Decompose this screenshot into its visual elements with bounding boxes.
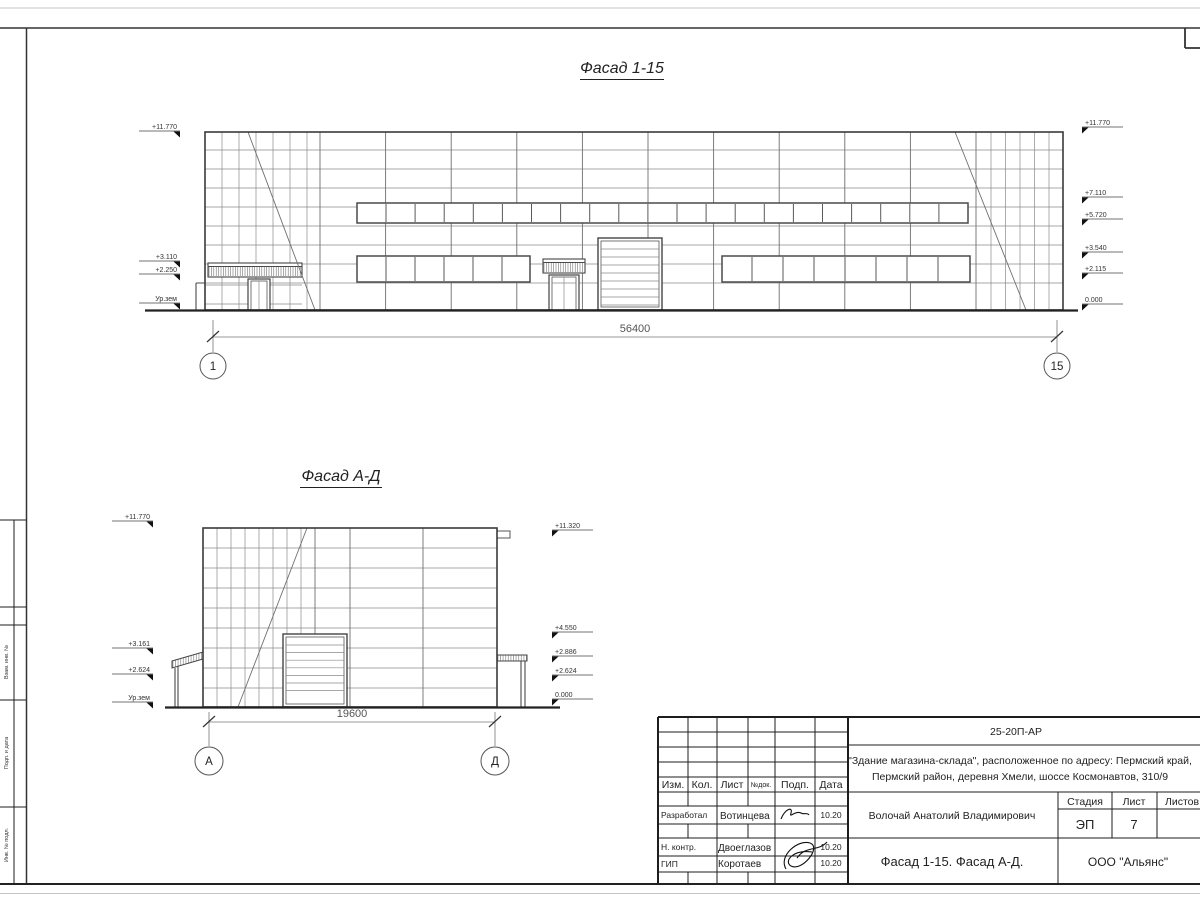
elevation-mark: +2.624: [552, 668, 593, 682]
svg-text:0.000: 0.000: [1085, 297, 1103, 304]
svg-text:+5.720: +5.720: [1085, 212, 1107, 219]
frame-side-column: Взам. инв. № Подп. и дата Инв. № подл.: [0, 520, 26, 884]
f2-axis-a-label: А: [205, 756, 213, 768]
tb-col-list: Лист: [721, 779, 744, 791]
elevation-mark: +3.540: [1082, 245, 1123, 259]
tb-role: ГИП: [661, 859, 678, 869]
elevation-mark: +11.770: [139, 124, 180, 138]
elevation-mark: +11.770: [1082, 120, 1123, 134]
f2-elevation-marks-right: +11.320 +4.550 +2.886 +2.624 0.000: [552, 523, 593, 706]
elevation-mark: +4.550: [552, 625, 593, 639]
tb-col-izm: Изм.: [662, 779, 685, 791]
f2-roof-vent: [497, 531, 510, 538]
elevation-mark: +2.886: [552, 649, 593, 663]
tb-col-podp: Подп.: [781, 779, 809, 791]
elevation-mark: +3.161: [112, 641, 153, 655]
svg-text:+2.886: +2.886: [555, 649, 577, 656]
f2-right-canopy: [497, 655, 527, 707]
tb-role: Разработал: [661, 810, 707, 820]
svg-text:+2.115: +2.115: [1085, 266, 1106, 273]
tb-date: 10.20: [820, 858, 842, 868]
elevation-mark: +2.624: [112, 667, 153, 681]
facade-1-15-drawing: Фасад 1-15: [139, 60, 1123, 379]
f1-axis-1: 1: [200, 353, 226, 379]
elevation-mark: +5.720: [1082, 212, 1123, 226]
facade-a-d-title: Фасад А-Д: [301, 468, 380, 485]
f1-dimension: 56400: [207, 320, 1063, 352]
svg-text:Ур.зем: Ур.зем: [128, 695, 150, 702]
elevation-mark: +2.115: [1082, 266, 1123, 280]
f1-left-entrance: [196, 263, 302, 310]
f1-entrance-door: [543, 259, 585, 310]
svg-text:+11.770: +11.770: [125, 514, 150, 521]
elevation-mark: +3.110: [139, 254, 180, 268]
f2-dimension: 19600: [203, 708, 501, 746]
f1-elevation-marks-left: +11.770 +3.110 +2.250 Ур.зем: [139, 124, 180, 310]
svg-text:Ур.зем: Ур.зем: [155, 296, 177, 303]
elevation-mark: Ур.зем: [112, 695, 153, 709]
f1-axis-1-label: 1: [210, 361, 216, 373]
tb-name: Вотинцева: [720, 811, 770, 822]
f2-axis-d: Д: [481, 747, 509, 775]
f2-axis-a: А: [195, 747, 223, 775]
side-label-podp: Подп. и дата: [4, 736, 10, 769]
f2-sectional-door: [283, 634, 347, 707]
tb-stage-label: Стадия: [1067, 796, 1103, 808]
elevation-mark: 0.000: [1082, 297, 1123, 311]
svg-text:+3.110: +3.110: [156, 254, 177, 261]
tb-name: Двоеглазов: [718, 843, 771, 854]
tb-list-label: Лист: [1123, 796, 1146, 808]
svg-text:+2.624: +2.624: [555, 668, 577, 675]
tb-role: Н. контр.: [661, 842, 696, 852]
tb-date: 10.20: [820, 810, 842, 820]
drawing-sheet: Взам. инв. № Подп. и дата Инв. № подл. Ф…: [0, 0, 1200, 900]
tb-col-kol: Кол.: [692, 779, 713, 791]
title-block: 25-20П-АР "Здание магазина-склада", расп…: [658, 717, 1200, 884]
side-label-inv: Инв. № подл.: [4, 827, 10, 862]
elevation-mark: +7.110: [1082, 190, 1123, 204]
tb-col-data: Дата: [819, 779, 842, 791]
tb-stage-value: ЭП: [1076, 817, 1095, 832]
tb-doc-number: 25-20П-АР: [990, 726, 1042, 738]
tb-listov-label: Листов: [1165, 796, 1200, 808]
f1-elevation-marks-right: +11.770 +7.110 +5.720 +3.540 +2.115 0.00…: [1082, 120, 1123, 311]
tb-company-name: ООО "Альянс": [1088, 855, 1168, 869]
side-label-vzam: Взам. инв. №: [4, 645, 10, 679]
f1-axis-15: 15: [1044, 353, 1070, 379]
f1-upper-window-band: [357, 203, 968, 223]
f2-leanto-canopy: [172, 652, 203, 707]
f2-axis-d-label: Д: [491, 756, 499, 768]
tb-project-line2: Пермский район, деревня Хмели, шоссе Кос…: [872, 771, 1168, 783]
svg-text:+4.550: +4.550: [555, 625, 577, 632]
tb-project-line1: "Здание магазина-склада", расположенное …: [848, 755, 1192, 767]
tb-signature-developer: [781, 809, 809, 819]
svg-text:+2.250: +2.250: [155, 267, 177, 274]
f1-sectional-door: [598, 238, 662, 310]
tb-chief-name: Волочай Анатолий Владимирович: [869, 810, 1036, 822]
tb-sheet-number: 7: [1130, 817, 1137, 832]
tb-header-row: Изм. Кол. Лист №док. Подп. Дата: [662, 779, 843, 791]
f2-dimension-label: 19600: [337, 708, 368, 720]
elevation-mark: 0.000: [552, 692, 593, 706]
svg-text:+3.161: +3.161: [128, 641, 150, 648]
facade-a-d-drawing: Фасад А-Д 196: [112, 468, 593, 775]
drawing-canvas: Взам. инв. № Подп. и дата Инв. № подл. Ф…: [0, 0, 1200, 900]
tb-date: 10.20: [820, 842, 842, 852]
tb-name: Коротаев: [718, 859, 761, 870]
f1-dimension-label: 56400: [620, 323, 651, 335]
svg-text:+11.770: +11.770: [1085, 120, 1110, 127]
svg-text:+11.320: +11.320: [555, 523, 580, 530]
svg-text:0.000: 0.000: [555, 692, 573, 699]
f1-axis-15-label: 15: [1051, 361, 1064, 373]
f1-lower-window-band-right: [722, 256, 970, 282]
svg-text:+7.110: +7.110: [1085, 190, 1106, 197]
tb-col-ndok: №док.: [751, 782, 772, 789]
elevation-mark: +2.250: [139, 267, 180, 281]
elevation-mark: +11.320: [552, 523, 593, 537]
svg-text:+2.624: +2.624: [128, 667, 150, 674]
facade-1-15-title: Фасад 1-15: [580, 60, 664, 77]
frame-corner-box: [1185, 28, 1200, 48]
svg-text:+11.770: +11.770: [152, 124, 177, 131]
svg-text:+3.540: +3.540: [1085, 245, 1107, 252]
tb-drawing-title: Фасад 1-15. Фасад А-Д.: [881, 854, 1024, 869]
elevation-mark: Ур.зем: [139, 296, 180, 310]
elevation-mark: +11.770: [112, 514, 153, 528]
f2-elevation-marks-left: +11.770 +3.161 +2.624 Ур.зем: [112, 514, 153, 709]
